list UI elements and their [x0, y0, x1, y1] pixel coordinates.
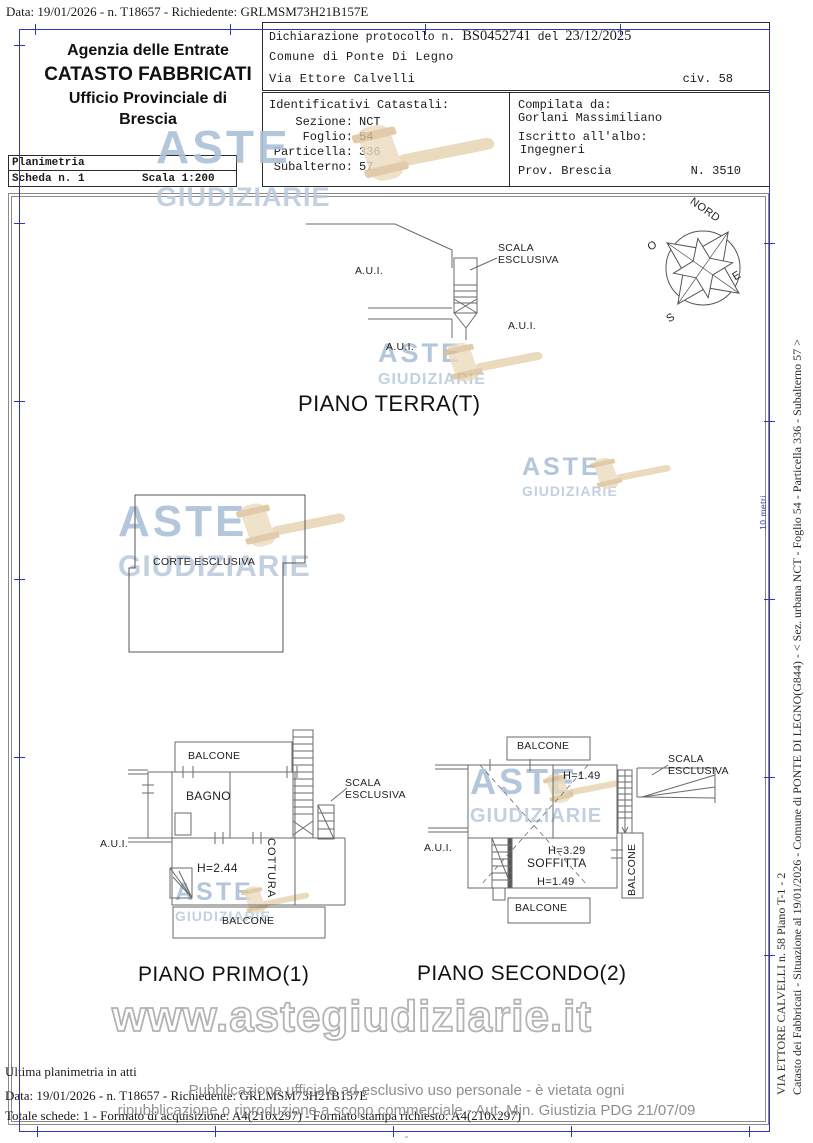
side-text-outer: Catasto dei Fabbricati - Situazione al 1…	[790, 195, 805, 1095]
primo-balcone-bottom-label: BALCONE	[222, 915, 274, 927]
declaration-protocol: BS0452741	[462, 28, 531, 44]
agency-header: Agenzia delle Entrate CATASTO FABBRICATI…	[38, 42, 258, 129]
agency-line1: Agenzia delle Entrate	[38, 42, 258, 60]
secondo-balcone-bottom-label: BALCONE	[515, 902, 567, 914]
scheda-label: Scheda n. 1	[12, 171, 85, 187]
compiler-number: N. 3510	[691, 164, 741, 178]
ruler-tick	[14, 574, 25, 585]
ruler-tick	[566, 1126, 577, 1137]
ruler-tick	[744, 1126, 755, 1137]
compiler-label: Compilata da:	[518, 98, 612, 112]
secondo-soffitta-label: SOFFITTA	[527, 856, 587, 870]
ruler-tick	[420, 24, 431, 35]
publication-line1: Pubblicazione ufficiale ad esclusivo uso…	[0, 1081, 813, 1101]
ruler-tick	[14, 396, 25, 407]
scala-line2: ESCLUSIVA	[345, 789, 406, 801]
secondo-balcone-right-label: BALCONE	[626, 838, 638, 896]
ruler-tick	[764, 950, 775, 961]
agency-line2: CATASTO FABBRICATI	[38, 64, 258, 86]
scala-line1: SCALA	[345, 777, 406, 789]
footer-dash: -	[0, 1126, 813, 1143]
ruler-tick	[210, 1126, 221, 1137]
publication-notice: Pubblicazione ufficiale ad esclusivo uso…	[0, 1081, 813, 1121]
side-text-inner: VIA ETTORE CALVELLI n. 58 Piano T-1 - 2	[774, 840, 789, 1095]
compiler-albo: Ingegneri	[520, 143, 585, 157]
terra-aui-label-right: A.U.I.	[508, 320, 536, 332]
ruler-tick	[615, 24, 626, 35]
compiler-box: Compilata da: Gorlani Massimiliano Iscri…	[509, 92, 770, 187]
footer-ultima-line: Ultima planimetria in atti	[5, 1064, 137, 1080]
gavel-icon	[352, 118, 502, 190]
declaration-line: Dichiarazione protocollo n. BS0452741 de…	[269, 28, 631, 45]
scala-line1: SCALA	[498, 242, 559, 254]
ruler-tick	[14, 218, 25, 229]
agency-line3: Ufficio Provinciale di	[38, 90, 258, 108]
declaration-del: del	[538, 31, 559, 44]
primo-scala-esclusiva-label: SCALA ESCLUSIVA	[345, 777, 406, 801]
ruler-tick	[14, 752, 25, 763]
secondo-scala-esclusiva-label: SCALA ESCLUSIVA	[668, 753, 729, 777]
watermark-aste-text: ASTE	[156, 124, 331, 170]
piano-secondo-caption: PIANO SECONDO(2)	[417, 962, 626, 986]
primo-height-label: H=2.44	[197, 861, 238, 875]
primo-bagno-label: BAGNO	[186, 789, 231, 803]
compass-rose	[645, 203, 755, 323]
compiler-name: Gorlani Massimiliano	[518, 111, 662, 125]
declaration-box: Dichiarazione protocollo n. BS0452741 de…	[262, 22, 770, 91]
ruler-scale-label: 10 metri	[758, 486, 768, 530]
piano-terra-caption: PIANO TERRA(T)	[298, 391, 480, 417]
publication-line2: ripubblicazione o riproduzione a scopo c…	[0, 1101, 813, 1121]
ruler-tick	[14, 40, 25, 51]
compiler-prov: Prov. Brescia	[518, 164, 612, 178]
request-header-line: Data: 19/01/2026 - n. T18657 - Richieden…	[6, 4, 368, 20]
secondo-balcone-top-label: BALCONE	[517, 740, 569, 752]
terra-aui-label: A.U.I.	[355, 265, 383, 277]
ruler-line-top	[19, 29, 769, 30]
ruler-tick	[225, 24, 236, 35]
comune-line: Comune di Ponte Di Legno	[269, 50, 454, 64]
primo-balcone-top-label: BALCONE	[188, 750, 240, 762]
ruler-tick	[764, 416, 775, 427]
cadastral-title: Identificativi Catastali:	[269, 98, 449, 112]
ruler-line-right	[769, 29, 770, 1131]
civic-number: civ. 58	[683, 72, 733, 86]
primo-cottura-label: COTTURA	[265, 838, 277, 898]
compiler-albo-label: Iscritto all'albo:	[518, 130, 648, 144]
primo-aui-label: A.U.I.	[100, 838, 128, 850]
ruler-tick	[764, 772, 775, 783]
piano-primo-caption: PIANO PRIMO(1)	[138, 963, 309, 987]
scala-line2: ESCLUSIVA	[668, 765, 729, 777]
terra-scala-esclusiva-label: SCALA ESCLUSIVA	[498, 242, 559, 266]
ruler-tick	[388, 1126, 399, 1137]
corte-esclusiva-drawing	[120, 488, 315, 663]
secondo-h149-top-label: H=1.49	[563, 770, 601, 782]
gavel-icon	[590, 454, 675, 494]
ruler-tick	[32, 1126, 43, 1137]
ruler-tick	[764, 594, 775, 605]
secondo-aui-label: A.U.I.	[424, 842, 452, 854]
scala-line1: SCALA	[668, 753, 729, 765]
terra-aui-label-bottom: A.U.I.	[386, 341, 414, 353]
watermark-site-url: www.astegiudiziarie.it	[112, 992, 592, 1042]
corte-esclusiva-label: CORTE ESCLUSIVA	[153, 556, 255, 568]
street-line: Via Ettore Calvelli	[269, 72, 415, 86]
ruler-tick	[30, 24, 41, 35]
secondo-h149-bottom-label: H=1.49	[537, 876, 575, 888]
scala-line2: ESCLUSIVA	[498, 254, 559, 266]
ruler-tick	[764, 238, 775, 249]
cadastral-planimetry-page: ASTE GIUDIZIARIE ASTE GIUDIZIARIE ASTE G…	[0, 0, 813, 1143]
